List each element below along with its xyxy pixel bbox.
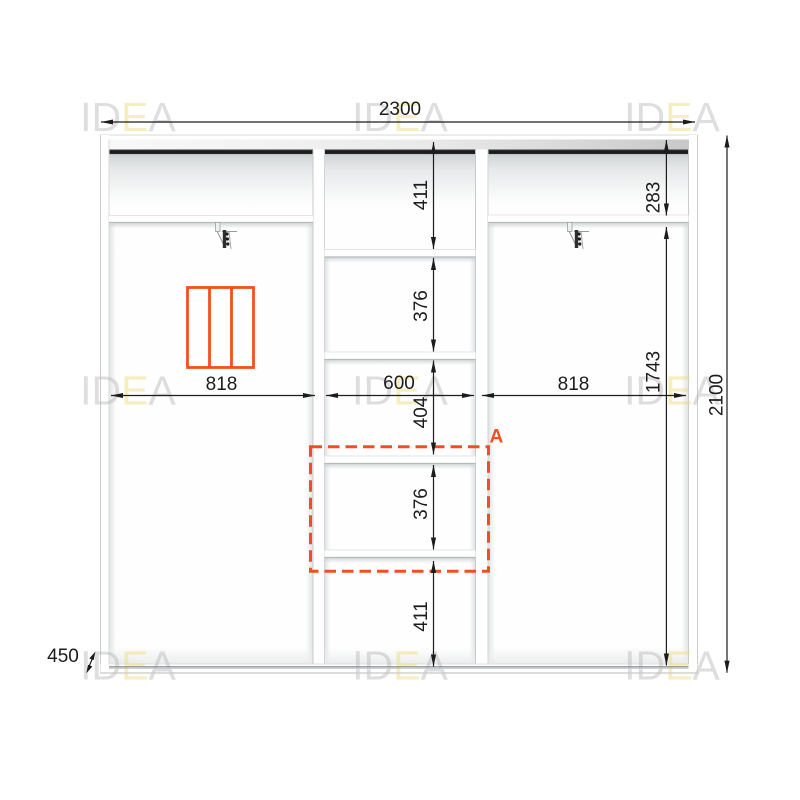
svg-text:450: 450 bbox=[47, 646, 79, 667]
svg-text:A: A bbox=[490, 427, 504, 448]
svg-text:411: 411 bbox=[411, 601, 432, 631]
svg-text:283: 283 bbox=[644, 182, 665, 214]
svg-text:IDEA: IDEA bbox=[80, 94, 176, 140]
svg-text:376: 376 bbox=[411, 290, 432, 322]
svg-text:818: 818 bbox=[206, 374, 238, 395]
svg-text:818: 818 bbox=[558, 374, 590, 395]
svg-text:IDEA: IDEA bbox=[80, 368, 176, 414]
svg-text:1743: 1743 bbox=[644, 351, 665, 393]
svg-text:IDEA: IDEA bbox=[624, 94, 720, 140]
svg-text:IDEA: IDEA bbox=[80, 643, 176, 689]
svg-text:2300: 2300 bbox=[379, 99, 421, 120]
svg-text:IDEA: IDEA bbox=[624, 643, 720, 689]
svg-text:376: 376 bbox=[411, 488, 432, 520]
svg-text:2100: 2100 bbox=[707, 374, 728, 416]
svg-text:411: 411 bbox=[411, 180, 432, 210]
svg-text:600: 600 bbox=[383, 373, 415, 394]
svg-text:404: 404 bbox=[411, 396, 432, 428]
